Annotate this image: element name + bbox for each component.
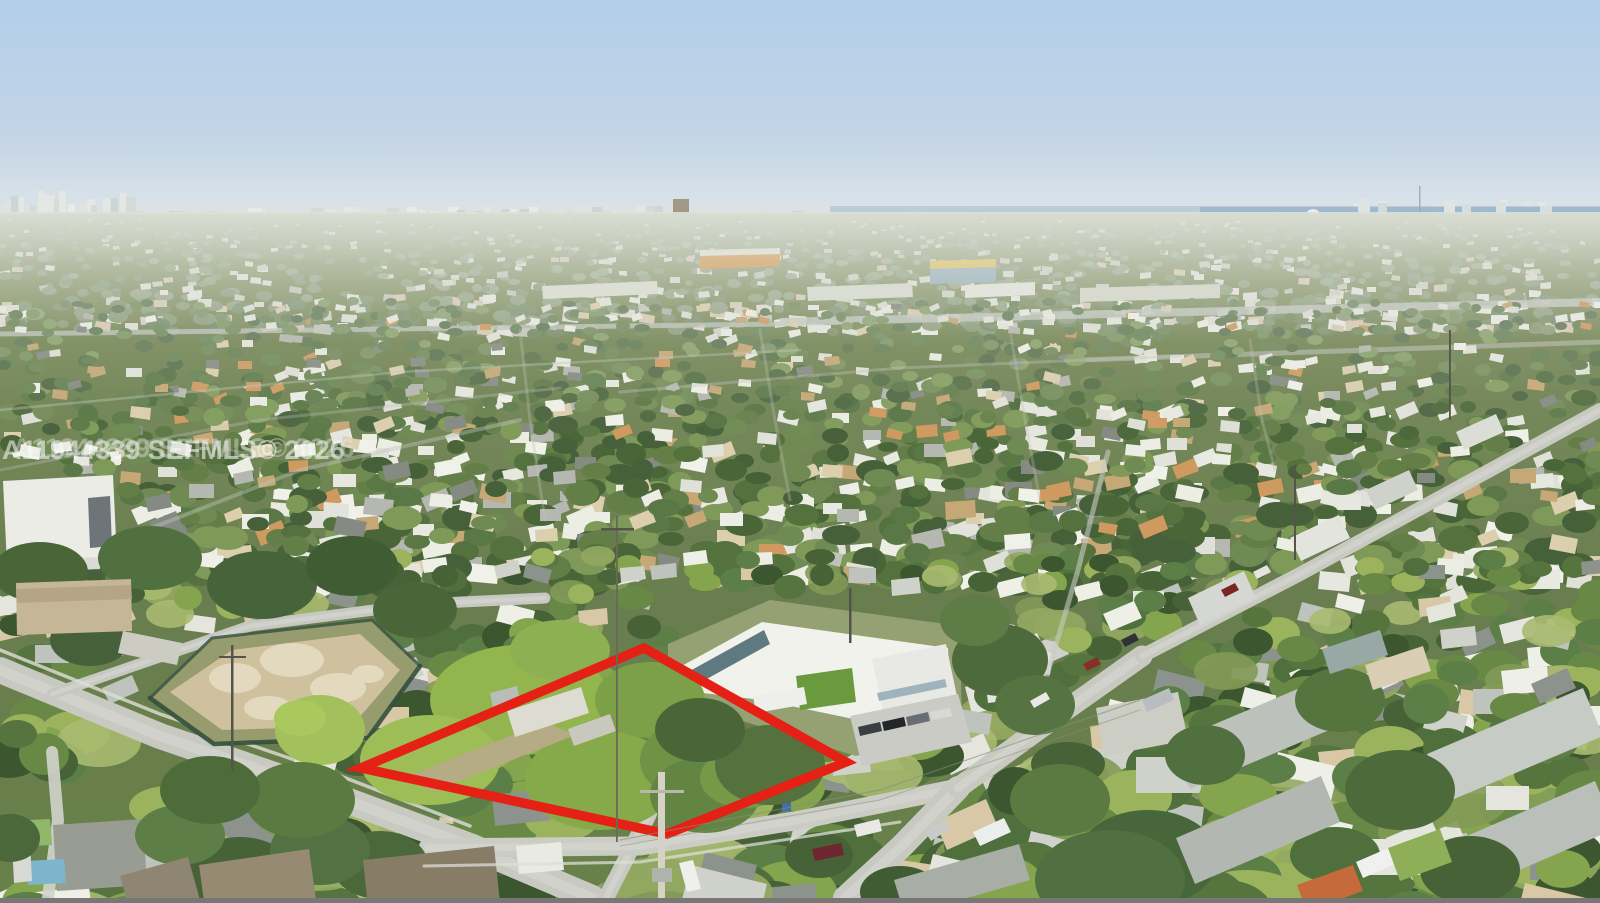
svg-text:A11944889 SEFMLS© 2026: A11944889 SEFMLS© 2026 bbox=[12, 433, 355, 463]
